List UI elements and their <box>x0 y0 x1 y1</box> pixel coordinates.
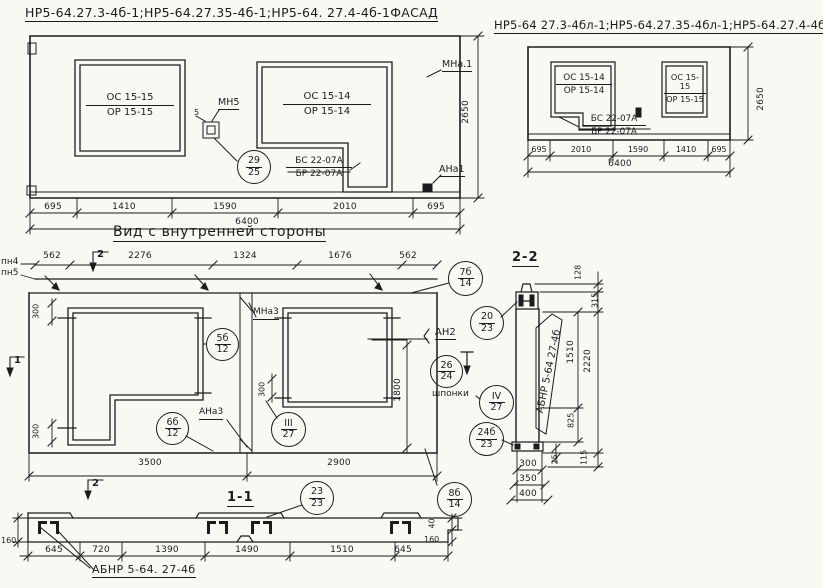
dim-1510: 1510 <box>322 546 362 556</box>
dim-645: 645 <box>37 546 71 556</box>
dim-1510: 1510 <box>567 338 577 366</box>
dim-1390: 1390 <box>147 546 187 556</box>
dim-1590: 1590 <box>621 146 655 155</box>
dim-5: 5 <box>194 109 199 118</box>
dim-3500: 3500 <box>130 459 170 469</box>
dim-2900: 2900 <box>319 459 359 469</box>
dim-1410: 1410 <box>107 203 141 213</box>
dim-825: 825 <box>568 408 577 432</box>
detail-bubble-6b-12: 6б 12 <box>156 412 189 445</box>
section-marker-2-bottom: 2 <box>92 478 99 489</box>
detail-bubble-24b-23: 24б 23 <box>469 422 504 456</box>
facade-right-window2-label: ОС 15-15 ОР 15-15 <box>664 73 706 104</box>
detail-bubble-23-23: 23 23 <box>300 481 334 515</box>
detail-bubble-26-24: 26 24 <box>430 355 463 388</box>
dim-128: 128 <box>575 261 584 283</box>
dim-350: 350 <box>511 475 545 485</box>
section-2-2-title: 2-2 <box>512 251 539 267</box>
detail-bubble-20-23: 20 23 <box>470 306 504 340</box>
detail-bubble-5b-12: 5б 12 <box>206 328 239 361</box>
dim-40: 40 <box>429 515 438 531</box>
panel-mark-1-1: АБНР 5-64. 27-4б <box>92 564 196 578</box>
detail-bubble-7b-14: 7б 14 <box>448 261 483 296</box>
facade-left-title: НР5-64.27.3-4б-1;НР5-64.27.35-4б-1;НР5-6… <box>25 6 438 22</box>
blueprint-sheet: НР5-64.27.3-4б-1;НР5-64.27.35-4б-1;НР5-6… <box>0 0 823 588</box>
dim-height-2650: 2650 <box>757 82 767 116</box>
dim-695: 695 <box>419 203 453 213</box>
section-1-1-outline <box>13 505 462 570</box>
detail-bubble-8b-14: 8б 14 <box>437 482 472 517</box>
detail-bubble-iv-27: IV 27 <box>479 385 514 420</box>
anchor-label-ana1: АНа1 <box>439 165 465 177</box>
inner-view-title: Вид с внутренней стороны <box>113 225 326 242</box>
facade-right-window1-label: ОС 15-14 ОР 15-14 <box>556 73 612 96</box>
dim-2220: 2220 <box>584 347 594 375</box>
dim-720: 720 <box>84 546 118 556</box>
window-series-bottom: ОР 15-15 <box>86 106 174 119</box>
dim-315: 315 <box>592 289 601 311</box>
facade-right-block-label: БС 22-07А БР 22-07А <box>582 114 646 137</box>
anchor-label-ana3: АНа3 <box>199 408 223 420</box>
detail-bubble-29-25: 29 25 <box>237 150 271 184</box>
label-pn5: пн5 <box>1 269 19 279</box>
dim-300: 300 <box>511 460 545 470</box>
anchor-label-an2: АН2 <box>435 327 456 340</box>
dim-695: 695 <box>702 146 736 155</box>
label-pn4: пн4 <box>1 258 19 268</box>
dim-total-6400: 6400 <box>600 160 640 170</box>
facade-left-block-label: БС 22-07А БР 22-07А <box>286 156 352 180</box>
dim-160-right: 160 <box>424 536 439 545</box>
anchor-label-mn5: МН5 <box>218 98 239 110</box>
dim-300: 300 <box>259 377 268 401</box>
facade-right-outline <box>524 43 753 177</box>
facade-left-window2-label: ОС 15-14 ОР 15-14 <box>283 91 371 117</box>
dim-2010: 2010 <box>328 203 362 213</box>
anchor-label-mna1: МНа.1 <box>442 60 472 72</box>
dim-562: 562 <box>35 252 69 262</box>
dim-400: 400 <box>511 490 545 500</box>
dim-115: 115 <box>581 447 590 467</box>
dim-300: 300 <box>33 299 42 323</box>
section-1-1-title: 1-1 <box>227 491 254 507</box>
dim-645: 645 <box>386 546 420 556</box>
dim-1410: 1410 <box>669 146 703 155</box>
dim-1590: 1590 <box>208 203 242 213</box>
label-shponki: шпонки <box>432 390 469 400</box>
facade-right-title: НР5-64 27.3-4бл-1;НР5-64.27.35-4бл-1;НР5… <box>494 19 823 34</box>
dim-695: 695 <box>522 146 556 155</box>
dim-160-left: 160 <box>1 537 16 546</box>
dim-1490: 1490 <box>227 546 267 556</box>
dim-1800: 1800 <box>394 375 404 405</box>
section-marker-1: 1 <box>14 355 21 366</box>
dim-300: 300 <box>33 419 42 443</box>
facade-left-window1-label: ОС 15-15 ОР 15-15 <box>86 92 174 118</box>
facade-left-outline <box>26 32 484 234</box>
detail-bubble-iii-27: III 27 <box>271 412 306 447</box>
anchor-label-mna3: МНа3 <box>253 308 279 320</box>
dim-25: 25 <box>552 451 561 467</box>
dim-562: 562 <box>391 252 425 262</box>
dim-1324: 1324 <box>228 252 262 262</box>
window-series-top: ОС 15-15 <box>86 92 174 106</box>
dim-2276: 2276 <box>123 252 157 262</box>
section-marker-2-top: 2 <box>97 249 104 260</box>
dim-695: 695 <box>36 203 70 213</box>
dim-2010: 2010 <box>564 146 598 155</box>
dim-1676: 1676 <box>323 252 357 262</box>
dim-height-2650: 2650 <box>462 95 472 129</box>
